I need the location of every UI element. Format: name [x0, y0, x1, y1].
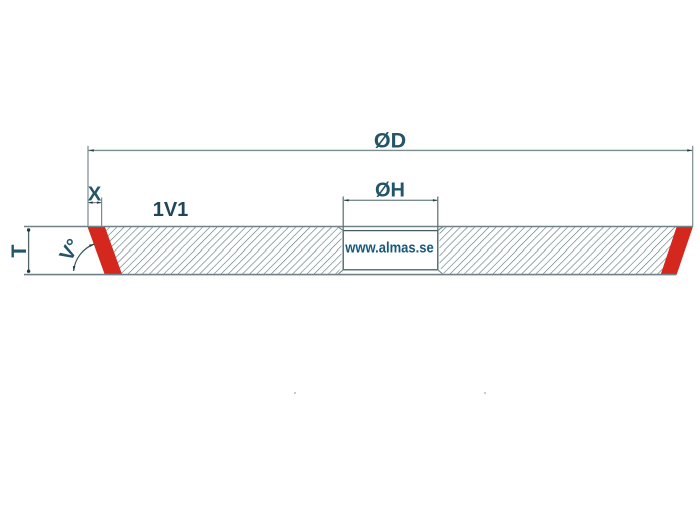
- svg-text:ØH: ØH: [375, 180, 405, 202]
- svg-text:1V1: 1V1: [153, 199, 189, 221]
- svg-text:ØD: ØD: [374, 128, 406, 152]
- svg-text:X: X: [88, 183, 102, 205]
- svg-text:www.almas.se: www.almas.se: [344, 240, 433, 256]
- svg-text:T: T: [7, 244, 31, 257]
